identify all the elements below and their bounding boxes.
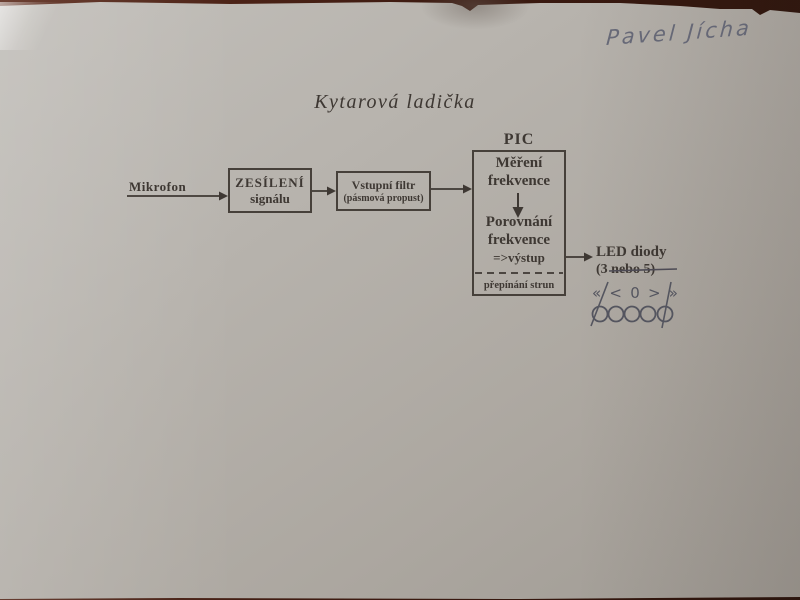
pic-string-switch-label: přepínání strun bbox=[474, 280, 564, 291]
mikrofon-label: Mikrofon bbox=[129, 179, 186, 195]
pic-measure-line1: Měření bbox=[474, 154, 564, 172]
pic-measure-block: Měření frekvence bbox=[474, 154, 564, 190]
pic-compare-line2: frekvence bbox=[474, 231, 564, 249]
photo-of-paper-diagram: Pavel Jícha Kytarová ladička Mikrofon ZE… bbox=[0, 0, 800, 600]
led-count-struck-part: nebo 5) bbox=[611, 262, 655, 277]
led-diody-label: LED diody bbox=[596, 244, 666, 261]
input-filter-box-line1: Vstupní filtr bbox=[352, 178, 416, 193]
symbol-far-left-chevron: « bbox=[592, 284, 601, 302]
input-filter-box-line2: (pásmová propust) bbox=[343, 193, 423, 204]
pic-box: Měření frekvence Porovnání frekvence =>v… bbox=[472, 150, 566, 296]
symbol-right-chevron: > bbox=[648, 284, 661, 302]
pic-measure-line2: frekvence bbox=[474, 172, 564, 190]
led-direction-symbols: « < 0 > » bbox=[592, 284, 678, 302]
amplifier-box-line1: ZESÍLENÍ bbox=[235, 175, 304, 191]
pic-output-line: =>výstup bbox=[474, 249, 564, 267]
symbol-center-zero: 0 bbox=[630, 284, 640, 302]
led-count-label: (3 nebo 5) bbox=[596, 262, 655, 278]
input-filter-box: Vstupní filtr (pásmová propust) bbox=[336, 171, 431, 211]
amplifier-box-line2: signálu bbox=[250, 191, 290, 207]
diagram-title: Kytarová ladička bbox=[300, 91, 490, 114]
pic-label: PIC bbox=[472, 131, 566, 149]
led-count-prefix: (3 bbox=[596, 262, 611, 277]
amplifier-box: ZESÍLENÍ signálu bbox=[228, 168, 312, 213]
symbol-left-chevron: < bbox=[609, 284, 622, 302]
pic-compare-line1: Porovnání bbox=[474, 213, 564, 231]
pic-compare-block: Porovnání frekvence =>výstup bbox=[474, 213, 564, 267]
symbol-far-right-chevron: » bbox=[669, 284, 678, 302]
paper-sheet bbox=[0, 0, 800, 600]
